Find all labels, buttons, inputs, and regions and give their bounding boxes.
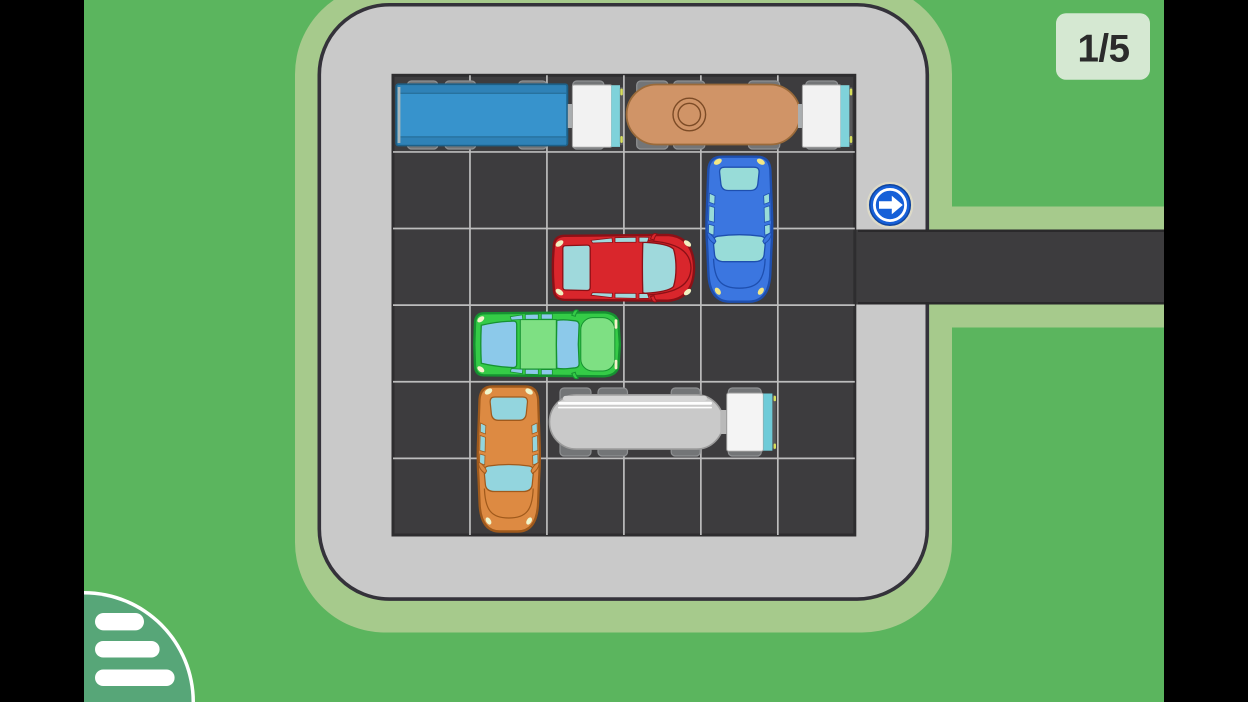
svg-text:1/5: 1/5 (1077, 28, 1129, 71)
